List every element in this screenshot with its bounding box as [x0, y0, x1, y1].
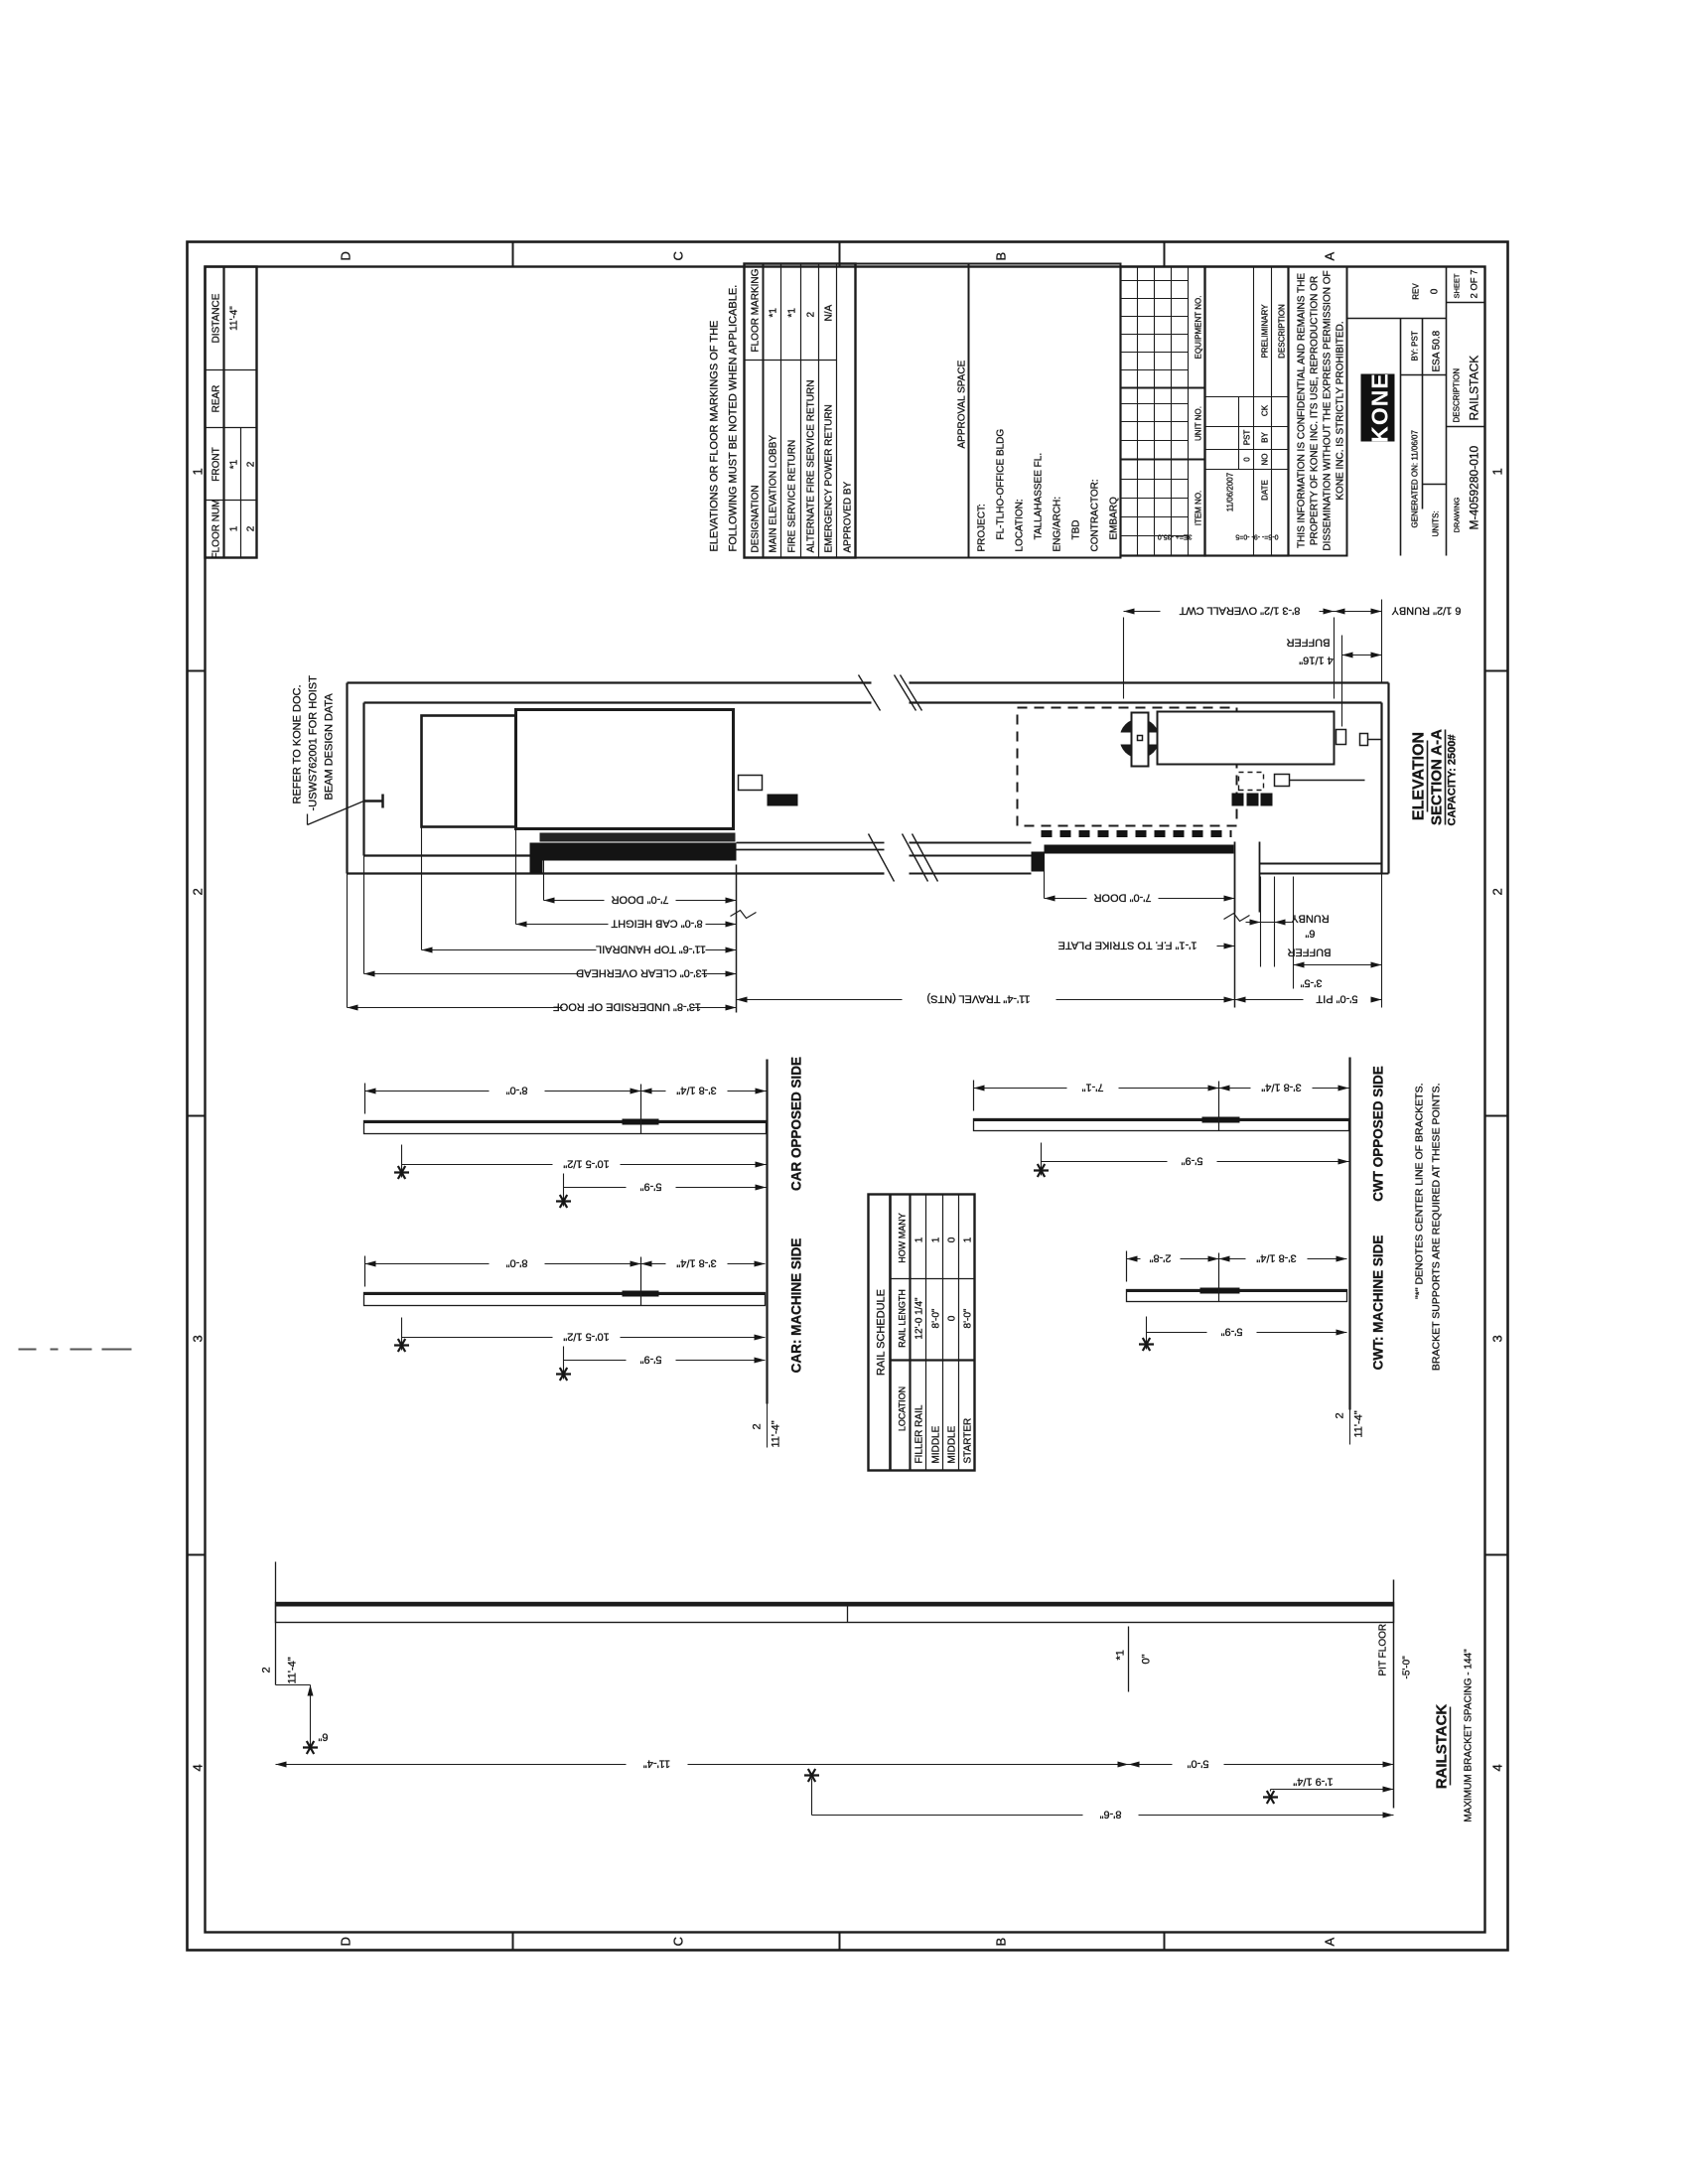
svg-text:13'-8" UNDERSIDE OF ROOF: 13'-8" UNDERSIDE OF ROOF [552, 1000, 700, 1012]
svg-text:*1: *1 [228, 459, 239, 469]
svg-text:3'-8 1/4": 3'-8 1/4" [676, 1084, 716, 1095]
svg-text:0": 0" [1140, 1654, 1152, 1664]
svg-text:FLOOR MARKING: FLOOR MARKING [750, 268, 761, 352]
svg-text:11/06/2007: 11/06/2007 [1225, 472, 1234, 511]
svg-text:5'-9": 5'-9" [1220, 1325, 1242, 1337]
svg-text:A: A [1322, 251, 1336, 260]
svg-text:PST: PST [1242, 429, 1251, 445]
svg-text:BUFFER: BUFFER [1287, 946, 1331, 957]
svg-text:8'-0": 8'-0" [505, 1256, 527, 1268]
svg-text:0: 0 [946, 1237, 957, 1242]
svg-text:BEAM DESIGN DATA: BEAM DESIGN DATA [323, 692, 335, 800]
svg-text:BY: PST: BY: PST [1410, 331, 1419, 361]
svg-text:CWT OPPOSED SIDE: CWT OPPOSED SIDE [1370, 1066, 1385, 1202]
svg-text:FL-TLHO-OFFICE BLDG: FL-TLHO-OFFICE BLDG [995, 428, 1006, 539]
svg-text:*1: *1 [786, 307, 797, 317]
svg-text:RUNBY: RUNBY [1290, 912, 1329, 924]
svg-text:REV: REV [1411, 282, 1420, 299]
svg-text:FLOOR NUM: FLOOR NUM [211, 499, 221, 558]
svg-text:APPROVAL SPACE: APPROVAL SPACE [956, 360, 967, 448]
svg-text:EMBARQ: EMBARQ [1108, 496, 1119, 539]
svg-text:1: 1 [930, 1237, 941, 1242]
svg-text:3'-8 1/4": 3'-8 1/4" [1261, 1081, 1301, 1092]
svg-text:MAIN ELEVATION LOBBY: MAIN ELEVATION LOBBY [768, 434, 778, 552]
svg-text:NO: NO [1260, 453, 1269, 465]
svg-text:MIDDLE: MIDDLE [946, 1425, 957, 1463]
svg-text:BUFFER: BUFFER [1286, 636, 1330, 648]
svg-text:0: 0 [946, 1315, 957, 1321]
svg-text:RAIL SCHEDULE: RAIL SCHEDULE [875, 1288, 887, 1375]
svg-text:5'-0": 5'-0" [1187, 1757, 1208, 1769]
svg-text:2 OF 7: 2 OF 7 [1469, 269, 1479, 298]
svg-text:N/A: N/A [823, 304, 834, 321]
svg-text:-USWS762001 FOR HOIST: -USWS762001 FOR HOIST [307, 674, 319, 810]
svg-text:0-5=- -9- -0=5: 0-5=- -9- -0=5 [1235, 532, 1278, 539]
svg-text:RAILSTACK: RAILSTACK [1467, 355, 1480, 420]
svg-text:FOLLOWING MUST BE NOTED WHEN A: FOLLOWING MUST BE NOTED WHEN APPLICABLE. [727, 284, 739, 551]
svg-text:CAR: MACHINE SIDE: CAR: MACHINE SIDE [788, 1238, 803, 1373]
svg-text:5'-9": 5'-9" [639, 1180, 661, 1192]
svg-text:APPROVED BY: APPROVED BY [842, 481, 853, 552]
svg-text:8'-0": 8'-0" [930, 1308, 941, 1328]
svg-text:FILLER RAIL: FILLER RAIL [914, 1404, 924, 1463]
svg-text:1'-9 1/4": 1'-9 1/4" [1293, 1775, 1333, 1787]
svg-text:2: 2 [190, 888, 205, 895]
svg-text:CAR OPPOSED SIDE: CAR OPPOSED SIDE [788, 1056, 803, 1190]
svg-text:1: 1 [1489, 468, 1504, 475]
svg-text:DESCRIPTION: DESCRIPTION [1452, 367, 1461, 422]
svg-text:B: B [993, 1937, 1008, 1946]
svg-text:PROJECT:: PROJECT: [976, 504, 987, 551]
svg-text:DATE: DATE [1260, 480, 1269, 501]
svg-text:FIRE SERVICE RETURN: FIRE SERVICE RETURN [786, 439, 797, 552]
svg-text:PRELIMINARY: PRELIMINARY [1260, 303, 1269, 358]
svg-text:8'-0": 8'-0" [962, 1308, 973, 1328]
svg-text:2: 2 [805, 311, 816, 317]
svg-text:10'-5 1/2": 10'-5 1/2" [563, 1330, 609, 1342]
svg-text:STARTER: STARTER [962, 1417, 973, 1463]
svg-text:-5'-0": -5'-0" [1401, 1655, 1412, 1678]
svg-text:5'-9": 5'-9" [1181, 1154, 1202, 1166]
svg-text:CONTRACTOR:: CONTRACTOR: [1089, 479, 1100, 551]
svg-text:2: 2 [245, 461, 256, 467]
svg-text:MAXIMUM BRACKET SPACING - 144": MAXIMUM BRACKET SPACING - 144" [1463, 1648, 1474, 1821]
svg-text:A: A [1322, 1937, 1336, 1946]
svg-text:11'-4": 11'-4" [1352, 1410, 1364, 1437]
svg-text:1: 1 [228, 525, 239, 531]
svg-text:ALTERNATE FIRE SERVICE RETURN: ALTERNATE FIRE SERVICE RETURN [805, 379, 816, 552]
svg-text:TALLAHASSEE FL.: TALLAHASSEE FL. [1033, 452, 1044, 539]
svg-text:DESCRIPTION: DESCRIPTION [1277, 303, 1286, 358]
svg-text:PROPERTY OF KONE INC. ITS USE,: PROPERTY OF KONE INC. ITS USE, REPRODUCT… [1309, 275, 1320, 544]
svg-text:UNITS:: UNITS: [1431, 510, 1440, 536]
svg-text:B: B [993, 251, 1008, 260]
svg-text:7'-0" DOOR: 7'-0" DOOR [611, 893, 668, 905]
svg-text:1: 1 [914, 1237, 924, 1242]
svg-text:5'-0" PIT: 5'-0" PIT [1316, 992, 1357, 1004]
svg-text:DISTANCE: DISTANCE [211, 293, 221, 343]
svg-text:D: D [338, 251, 352, 260]
svg-text:6": 6" [318, 1730, 328, 1742]
svg-text:11'-4": 11'-4" [642, 1757, 669, 1769]
svg-text:3: 3 [1489, 1335, 1504, 1342]
svg-text:3E=+ -35.0: 3E=+ -35.0 [1157, 532, 1192, 539]
svg-text:GENERATED ON: 11/06/07: GENERATED ON: 11/06/07 [1410, 429, 1419, 527]
svg-text:ESA 50.8: ESA 50.8 [1431, 330, 1442, 371]
svg-text:2: 2 [260, 1667, 272, 1673]
svg-text:*1: *1 [768, 307, 778, 317]
svg-text:0: 0 [1429, 288, 1440, 294]
svg-text:BRACKET SUPPORTS ARE REQUIRED: BRACKET SUPPORTS ARE REQUIRED AT THESE P… [1430, 1083, 1442, 1371]
svg-text:HOW MANY: HOW MANY [897, 1213, 907, 1263]
svg-text:11'-4": 11'-4" [286, 1657, 298, 1683]
svg-text:1: 1 [190, 468, 205, 475]
svg-text:2'-8": 2'-8" [1149, 1251, 1171, 1263]
svg-text:CK: CK [1260, 404, 1269, 416]
svg-text:11'-4" TRAVEL (NTS): 11'-4" TRAVEL (NTS) [926, 992, 1030, 1004]
svg-text:8'-0": 8'-0" [505, 1084, 527, 1095]
svg-text:CWT: MACHINE SIDE: CWT: MACHINE SIDE [1370, 1235, 1385, 1370]
svg-text:5'-9": 5'-9" [639, 1353, 661, 1365]
svg-text:DRAWING: DRAWING [1452, 497, 1461, 532]
svg-text:REFER TO KONE DOC.: REFER TO KONE DOC. [291, 684, 303, 803]
svg-text:8'-0" CAB HEIGHT: 8'-0" CAB HEIGHT [611, 917, 702, 929]
svg-text:4: 4 [1489, 1764, 1504, 1771]
svg-text:BY: BY [1260, 431, 1269, 442]
svg-text:TBD: TBD [1070, 519, 1081, 539]
svg-text:THIS INFORMATION IS CONFIDENTI: THIS INFORMATION IS CONFIDENTIAL AND REM… [1296, 272, 1307, 547]
svg-text:6 1/2" RUNBY: 6 1/2" RUNBY [1390, 604, 1461, 616]
svg-text:RAILSTACK: RAILSTACK [1433, 1703, 1450, 1789]
svg-text:13'-0" CLEAR OVERHEAD: 13'-0" CLEAR OVERHEAD [576, 966, 708, 978]
svg-text:3'-5": 3'-5" [1300, 976, 1322, 988]
svg-text:FRONT: FRONT [211, 447, 221, 481]
svg-text:2: 2 [751, 1423, 763, 1429]
svg-text:11'-4": 11'-4" [228, 305, 239, 330]
svg-text:RAIL LENGTH: RAIL LENGTH [897, 1289, 907, 1348]
svg-text:EQUIPMENT NO.: EQUIPMENT NO. [1194, 295, 1202, 359]
svg-text:4: 4 [190, 1764, 205, 1771]
svg-text:2: 2 [1334, 1412, 1345, 1418]
svg-text:"*" DENOTES CENTER LINE OF BRA: "*" DENOTES CENTER LINE OF BRACKETS. [1413, 1083, 1425, 1299]
svg-text:2: 2 [1489, 888, 1504, 895]
svg-text:12'-0 1/4": 12'-0 1/4" [914, 1296, 924, 1339]
svg-text:ITEM NO.: ITEM NO. [1194, 490, 1202, 525]
svg-text:MIDDLE: MIDDLE [930, 1425, 941, 1463]
svg-text:2: 2 [245, 525, 256, 531]
svg-text:PIT FLOOR: PIT FLOOR [1377, 1623, 1388, 1675]
svg-text:0: 0 [1242, 456, 1251, 461]
svg-text:M-4059280-010: M-4059280-010 [1467, 445, 1480, 529]
svg-text:ELEVATION: ELEVATION [1410, 731, 1427, 819]
svg-text:KONE INC. IS STRICTLY PROHIBIT: KONE INC. IS STRICTLY PROHIBITED. [1335, 321, 1345, 500]
svg-text:C: C [670, 1937, 685, 1946]
svg-text:UNIT NO.: UNIT NO. [1194, 406, 1202, 441]
svg-text:11'-4": 11'-4" [770, 1420, 781, 1447]
svg-text:3'-8 1/4": 3'-8 1/4" [1256, 1251, 1296, 1263]
svg-text:6": 6" [1305, 927, 1315, 939]
svg-text:7'-0" DOOR: 7'-0" DOOR [1093, 891, 1151, 903]
svg-text:SECTION A-A: SECTION A-A [1428, 728, 1445, 824]
svg-text:11'-6" TOP HANDRAIL: 11'-6" TOP HANDRAIL [596, 943, 706, 954]
svg-text:LOCATION:: LOCATION: [1014, 499, 1025, 551]
svg-text:10'-5 1/2": 10'-5 1/2" [563, 1157, 609, 1169]
svg-text:7'-1": 7'-1" [1081, 1081, 1103, 1092]
svg-text:DISSEMINATION WITHOUT THE EXPR: DISSEMINATION WITHOUT THE EXPRESS PERMIS… [1322, 270, 1333, 550]
svg-text:REAR: REAR [211, 384, 221, 412]
svg-text:8'-3 1/2" OVERALL CWT: 8'-3 1/2" OVERALL CWT [1179, 604, 1300, 616]
svg-text:3: 3 [190, 1335, 205, 1342]
svg-text:D: D [338, 1937, 352, 1946]
svg-text:3'-8 1/4": 3'-8 1/4" [676, 1256, 716, 1268]
svg-text:1: 1 [962, 1237, 973, 1242]
svg-text:KONE: KONE [1366, 372, 1392, 442]
svg-text:4 1/16": 4 1/16" [1299, 654, 1334, 665]
svg-text:SHEET: SHEET [1452, 273, 1461, 298]
svg-text:*1: *1 [1114, 1650, 1126, 1660]
svg-text:EMERGENCY POWER RETURN: EMERGENCY POWER RETURN [823, 404, 834, 552]
svg-text:DESIGNATION: DESIGNATION [750, 485, 761, 552]
svg-text:ELEVATIONS OR FLOOR MARKINGS O: ELEVATIONS OR FLOOR MARKINGS OF THE [708, 320, 720, 551]
svg-text:C: C [670, 251, 685, 260]
svg-text:1'-1" F.F. TO STRIKE PLATE: 1'-1" F.F. TO STRIKE PLATE [1057, 939, 1196, 950]
svg-text:ENG/ARCH:: ENG/ARCH: [1052, 496, 1062, 551]
svg-text:CAPACITY: 2500#: CAPACITY: 2500# [1446, 734, 1458, 825]
svg-text:8'-6": 8'-6" [1099, 1808, 1121, 1820]
svg-text:LOCATION: LOCATION [897, 1385, 907, 1430]
